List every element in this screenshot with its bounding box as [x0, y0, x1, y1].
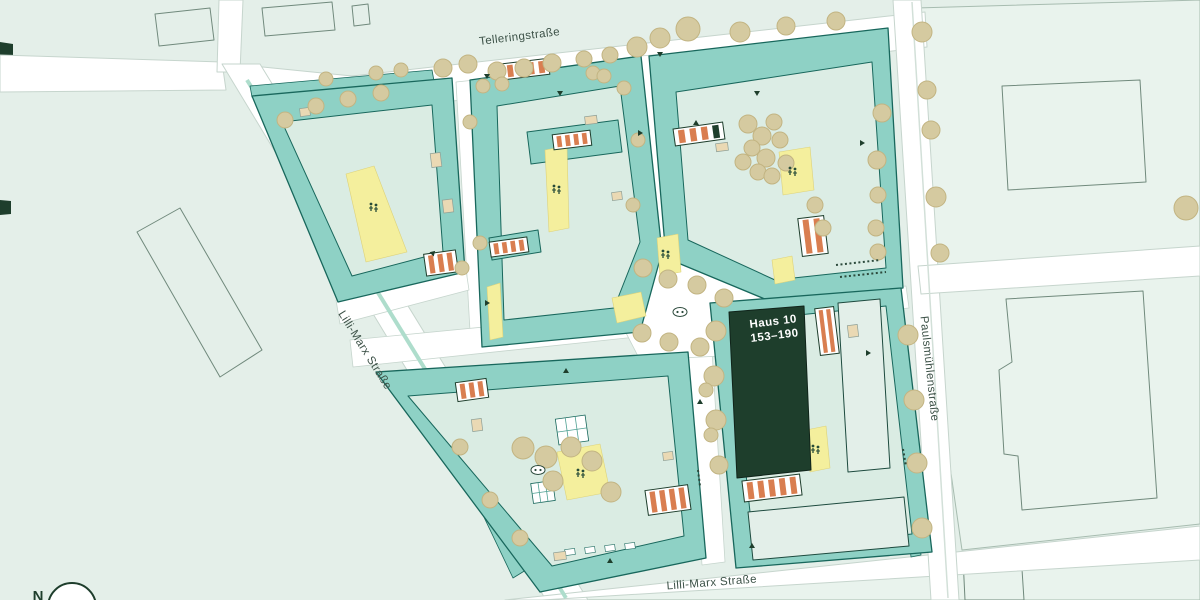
unit — [625, 542, 636, 549]
bike-rack-dot — [539, 469, 541, 471]
tree-icon — [739, 115, 757, 133]
tree-icon — [873, 104, 891, 122]
building-footprint — [352, 4, 370, 26]
tree-icon — [535, 446, 557, 468]
tree-icon — [543, 471, 563, 491]
tree-icon — [706, 410, 726, 430]
annex — [716, 142, 729, 151]
tree-icon — [277, 112, 293, 128]
building-footprint — [155, 8, 214, 46]
figure-head — [558, 186, 561, 189]
tree-icon — [394, 63, 408, 77]
tree-icon — [750, 164, 766, 180]
annex — [554, 551, 567, 560]
tree-icon — [597, 69, 611, 83]
bike-rack-oval — [673, 308, 687, 317]
tree-icon — [870, 187, 886, 203]
tree-icon — [633, 324, 651, 342]
playground — [772, 256, 795, 284]
parcel — [916, 0, 1200, 272]
tree-icon — [369, 66, 383, 80]
striped-building — [455, 378, 488, 401]
tree-icon — [543, 54, 561, 72]
bike-rack-icon — [673, 308, 687, 317]
street-label-top: Telleringstraße — [478, 26, 560, 48]
tree-icon — [912, 22, 932, 42]
bike-rack-dot — [681, 311, 683, 313]
figure-head — [812, 445, 815, 448]
tree-icon — [373, 85, 389, 101]
figure-head — [375, 204, 378, 207]
annex — [847, 324, 858, 337]
tree-icon — [931, 244, 949, 262]
unit — [605, 544, 616, 551]
tree-icon — [868, 220, 884, 236]
tree-icon — [730, 22, 750, 42]
bike-rack-icon — [531, 466, 545, 475]
playground — [487, 283, 503, 340]
tree-icon — [617, 81, 631, 95]
annex — [612, 191, 623, 200]
tree-icon — [706, 321, 726, 341]
tree-icon — [515, 59, 533, 77]
tree-icon — [1174, 196, 1198, 220]
compass-circle — [48, 583, 96, 600]
tree-icon — [815, 220, 831, 236]
edge-building — [0, 200, 11, 215]
striped-building — [424, 250, 459, 276]
tree-icon — [634, 259, 652, 277]
figure-head — [577, 469, 580, 472]
tree-icon — [512, 530, 528, 546]
tree-icon — [627, 37, 647, 57]
tree-icon — [495, 77, 509, 91]
tree-icon — [691, 338, 709, 356]
tree-icon — [561, 437, 581, 457]
tree-icon — [602, 47, 618, 63]
tree-icon — [582, 451, 602, 471]
street — [217, 0, 243, 72]
annex — [471, 418, 482, 431]
figure-head — [789, 167, 792, 170]
building-footprint — [262, 2, 335, 36]
annex — [430, 152, 442, 167]
tree-icon — [476, 79, 490, 93]
annex — [585, 115, 598, 124]
tree-icon — [650, 28, 670, 48]
tree-icon — [766, 114, 782, 130]
tree-icon — [626, 198, 640, 212]
tree-icon — [576, 51, 592, 67]
compass: N — [33, 583, 102, 600]
tree-icon — [319, 72, 333, 86]
tree-icon — [926, 187, 946, 207]
tree-icon — [688, 276, 706, 294]
figure-head — [582, 470, 585, 473]
tree-icon — [660, 333, 678, 351]
tree-icon — [870, 244, 886, 260]
unit — [565, 548, 576, 555]
playground — [545, 146, 569, 232]
figure-head — [667, 251, 670, 254]
tree-icon — [868, 151, 886, 169]
tree-icon — [898, 325, 918, 345]
tree-icon — [601, 482, 621, 502]
striped-building — [645, 485, 691, 516]
bike-rack-oval — [531, 466, 545, 475]
tree-icon — [482, 492, 498, 508]
figure-head — [370, 203, 373, 206]
tree-icon — [473, 236, 487, 250]
tree-icon — [777, 17, 795, 35]
tree-icon — [340, 91, 356, 107]
tree-icon — [676, 17, 700, 41]
tree-icon — [764, 168, 780, 184]
tree-icon — [699, 383, 713, 397]
parcel — [925, 274, 1200, 550]
compass-north-label: N — [33, 588, 44, 600]
annex — [663, 451, 674, 460]
tree-icon — [710, 456, 728, 474]
tree-icon — [459, 55, 477, 73]
tree-icon — [807, 197, 823, 213]
north-compass: N — [33, 583, 102, 600]
tree-icon — [904, 390, 924, 410]
site-plan: TelleringstraßeLilli-Marx StraßePaulsmüh… — [0, 0, 1200, 600]
bike-rack-dot — [676, 311, 678, 313]
tree-icon — [922, 121, 940, 139]
figure-head — [817, 446, 820, 449]
street — [0, 55, 226, 92]
tree-icon — [659, 270, 677, 288]
tree-icon — [735, 154, 751, 170]
tree-icon — [512, 437, 534, 459]
figure-head — [662, 250, 665, 253]
tree-icon — [918, 81, 936, 99]
bike-rack-dot — [534, 469, 536, 471]
tree-icon — [772, 132, 788, 148]
tree-icon — [778, 155, 794, 171]
tree-icon — [308, 98, 324, 114]
tree-icon — [463, 115, 477, 129]
tree-icon — [912, 518, 932, 538]
tree-icon — [434, 59, 452, 77]
tree-icon — [907, 453, 927, 473]
figure-head — [553, 185, 556, 188]
tree-icon — [452, 439, 468, 455]
tree-icon — [715, 289, 733, 307]
tree-icon — [455, 261, 469, 275]
annex — [442, 199, 454, 213]
unit — [585, 546, 596, 553]
figure-head — [794, 168, 797, 171]
tree-icon — [704, 428, 718, 442]
tree-icon — [827, 12, 845, 30]
building-footprint — [137, 208, 262, 377]
